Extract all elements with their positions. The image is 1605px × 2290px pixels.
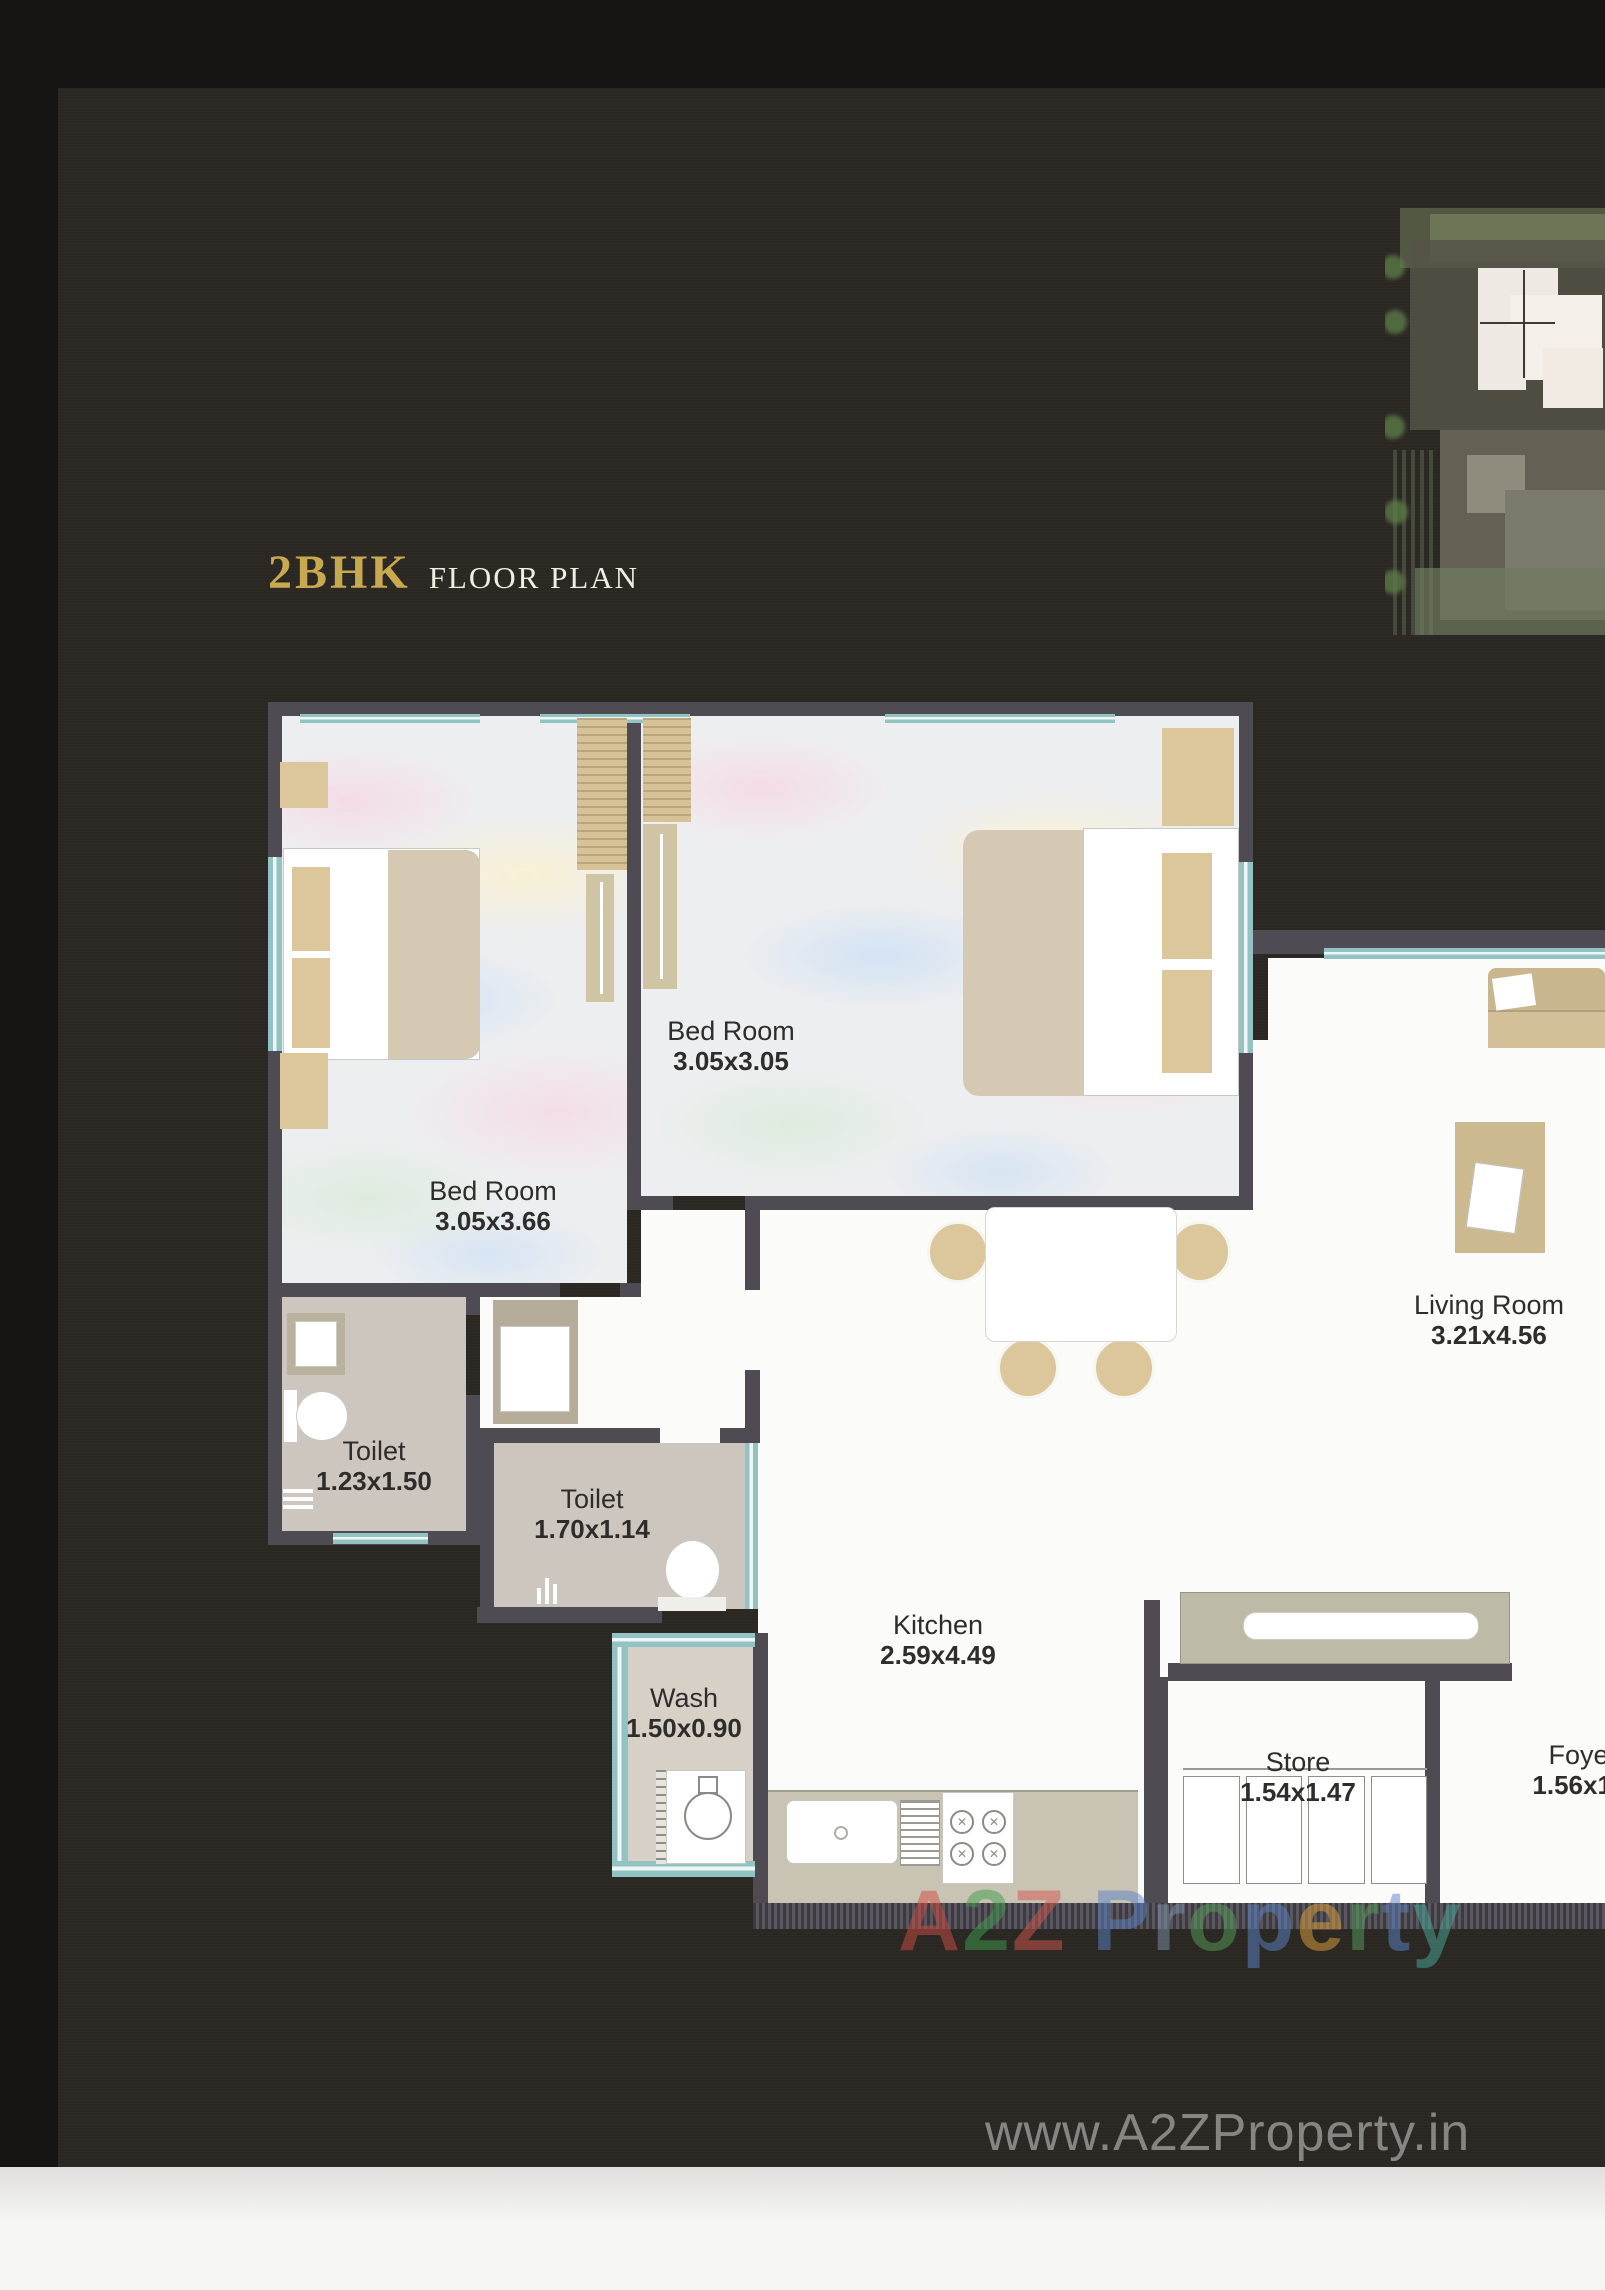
window-bedroom1-top-a: [300, 714, 480, 723]
bed-blanket: [388, 850, 480, 1059]
wardrobe: [643, 718, 691, 822]
counter-dish-icon: [1243, 1612, 1479, 1640]
title-2bhk: 2BHK: [268, 545, 411, 600]
title-floor-plan: FLOOR PLAN: [429, 560, 639, 596]
gas-stove-icon: ✕ ✕ ✕ ✕: [942, 1792, 1014, 1884]
bed-pillow: [1162, 970, 1212, 1073]
window-living-top: [1324, 948, 1605, 959]
burner-icon: ✕: [950, 1810, 974, 1834]
wall-passage-a: [745, 1210, 760, 1290]
washing-machine-knob: [698, 1776, 718, 1794]
nightstand: [1162, 728, 1234, 826]
towel-rail-icon: [283, 1489, 313, 1513]
wall-toilet1-right-b: [466, 1395, 480, 1545]
window-wash-top: [612, 1633, 755, 1647]
shelf-strip: [656, 1770, 666, 1864]
tree-icon: [1385, 310, 1407, 334]
window-bedroom2-top: [885, 714, 1115, 723]
room-label-toilet1: Toilet1.23x1.50: [316, 1436, 432, 1496]
room-label-toilet2: Toilet1.70x1.14: [534, 1484, 650, 1544]
room-label-store: Store1.54x1.47: [1240, 1747, 1356, 1807]
washbasin-icon: [500, 1326, 570, 1412]
wall-bedroom1-bottom-a: [268, 1283, 560, 1297]
wall-toilet2-top-a: [480, 1428, 660, 1443]
wall-toilet2-left: [480, 1443, 494, 1623]
scan-page-edge: [0, 2167, 1605, 2290]
nightstand: [280, 762, 328, 808]
room-label-wash: Wash1.50x0.90: [626, 1683, 742, 1743]
room-label-bedroom1: Bed Room3.05x3.66: [429, 1176, 557, 1236]
room-label-foyer: Foyer1.56x1.4: [1532, 1740, 1605, 1800]
burner-icon: ✕: [950, 1842, 974, 1866]
wardrobe-sliding-door: [586, 874, 614, 1002]
page-title: 2BHK FLOOR PLAN: [268, 545, 639, 600]
shelf-box: [1371, 1776, 1428, 1884]
wall-bedroom1-bottom-b: [620, 1283, 641, 1297]
site-unit-highlight4: [1543, 348, 1603, 408]
sink-drainer-icon: [900, 1800, 940, 1866]
burner-icon: ✕: [982, 1810, 1006, 1834]
room-label-living-room: Living Room3.21x4.56: [1414, 1290, 1564, 1350]
window-bedroom1-left: [268, 857, 282, 1051]
site-unit-line: [1523, 270, 1525, 378]
window-toilet1: [333, 1533, 428, 1544]
sink-drain-dot: [834, 1826, 848, 1840]
sofa-seat: [1488, 1010, 1605, 1048]
wall-under-counter: [1168, 1663, 1512, 1681]
site-unit-line2: [1480, 322, 1555, 324]
wall-bedroom2-right-b: [1239, 1053, 1253, 1210]
dining-table: [985, 1207, 1177, 1342]
toilet-wc-icon: [296, 1391, 348, 1441]
wall-living-top: [1324, 930, 1605, 948]
wall-bedroom-divider: [627, 716, 641, 1210]
window-bedroom2-right: [1239, 862, 1253, 1053]
watermark-url: www.A2ZProperty.in: [985, 2103, 1470, 2163]
toilet-wc-icon: [665, 1540, 720, 1600]
wall-bedroom2-right-a: [1239, 702, 1253, 862]
dining-chair: [1093, 1337, 1155, 1399]
site-unit-highlight3: [1478, 325, 1526, 390]
tree-icon: [1385, 255, 1405, 279]
dining-chair: [997, 1337, 1059, 1399]
wall-bedroom2-bottom-a: [641, 1196, 673, 1210]
window-toilet2-right: [745, 1443, 758, 1609]
window-wash-left: [612, 1647, 628, 1861]
towel-rail-icon: [537, 1578, 557, 1604]
coffee-table-icon: [1466, 1162, 1525, 1234]
wardrobe-sliding-door: [643, 824, 677, 989]
shelf-box: [1183, 1776, 1240, 1884]
wall-toilet1-right-a: [466, 1297, 480, 1315]
wall-wash-right: [753, 1633, 768, 1877]
wall-toilet2-bottom: [477, 1607, 662, 1623]
washing-machine-drum: [684, 1792, 732, 1840]
wall-toilet2-top-b: [720, 1428, 758, 1443]
toilet-wc-base: [658, 1597, 726, 1611]
tree-icon: [1385, 500, 1408, 524]
site-plan-thumbnail: [1385, 200, 1605, 635]
room-label-kitchen: Kitchen2.59x4.49: [880, 1610, 996, 1670]
wardrobe: [577, 718, 627, 870]
bed-pillow: [1162, 853, 1212, 959]
bed-pillow: [292, 867, 330, 951]
washbasin-icon: [295, 1321, 337, 1367]
bed-pillow: [292, 958, 330, 1048]
bed-blanket: [963, 830, 1083, 1096]
tree-icon: [1385, 415, 1405, 439]
room-label-bedroom2: Bed Room3.05x3.05: [667, 1016, 795, 1076]
bed: [1083, 828, 1239, 1096]
sofa-pillow: [1492, 973, 1536, 1010]
dining-chair: [927, 1221, 989, 1283]
watermark-a2z-property: A2Z Property: [898, 1872, 1462, 1971]
burner-icon: ✕: [982, 1842, 1006, 1866]
nightstand: [280, 1053, 328, 1129]
site-band-bottom: [1415, 568, 1605, 635]
dining-chair: [1169, 1221, 1231, 1283]
